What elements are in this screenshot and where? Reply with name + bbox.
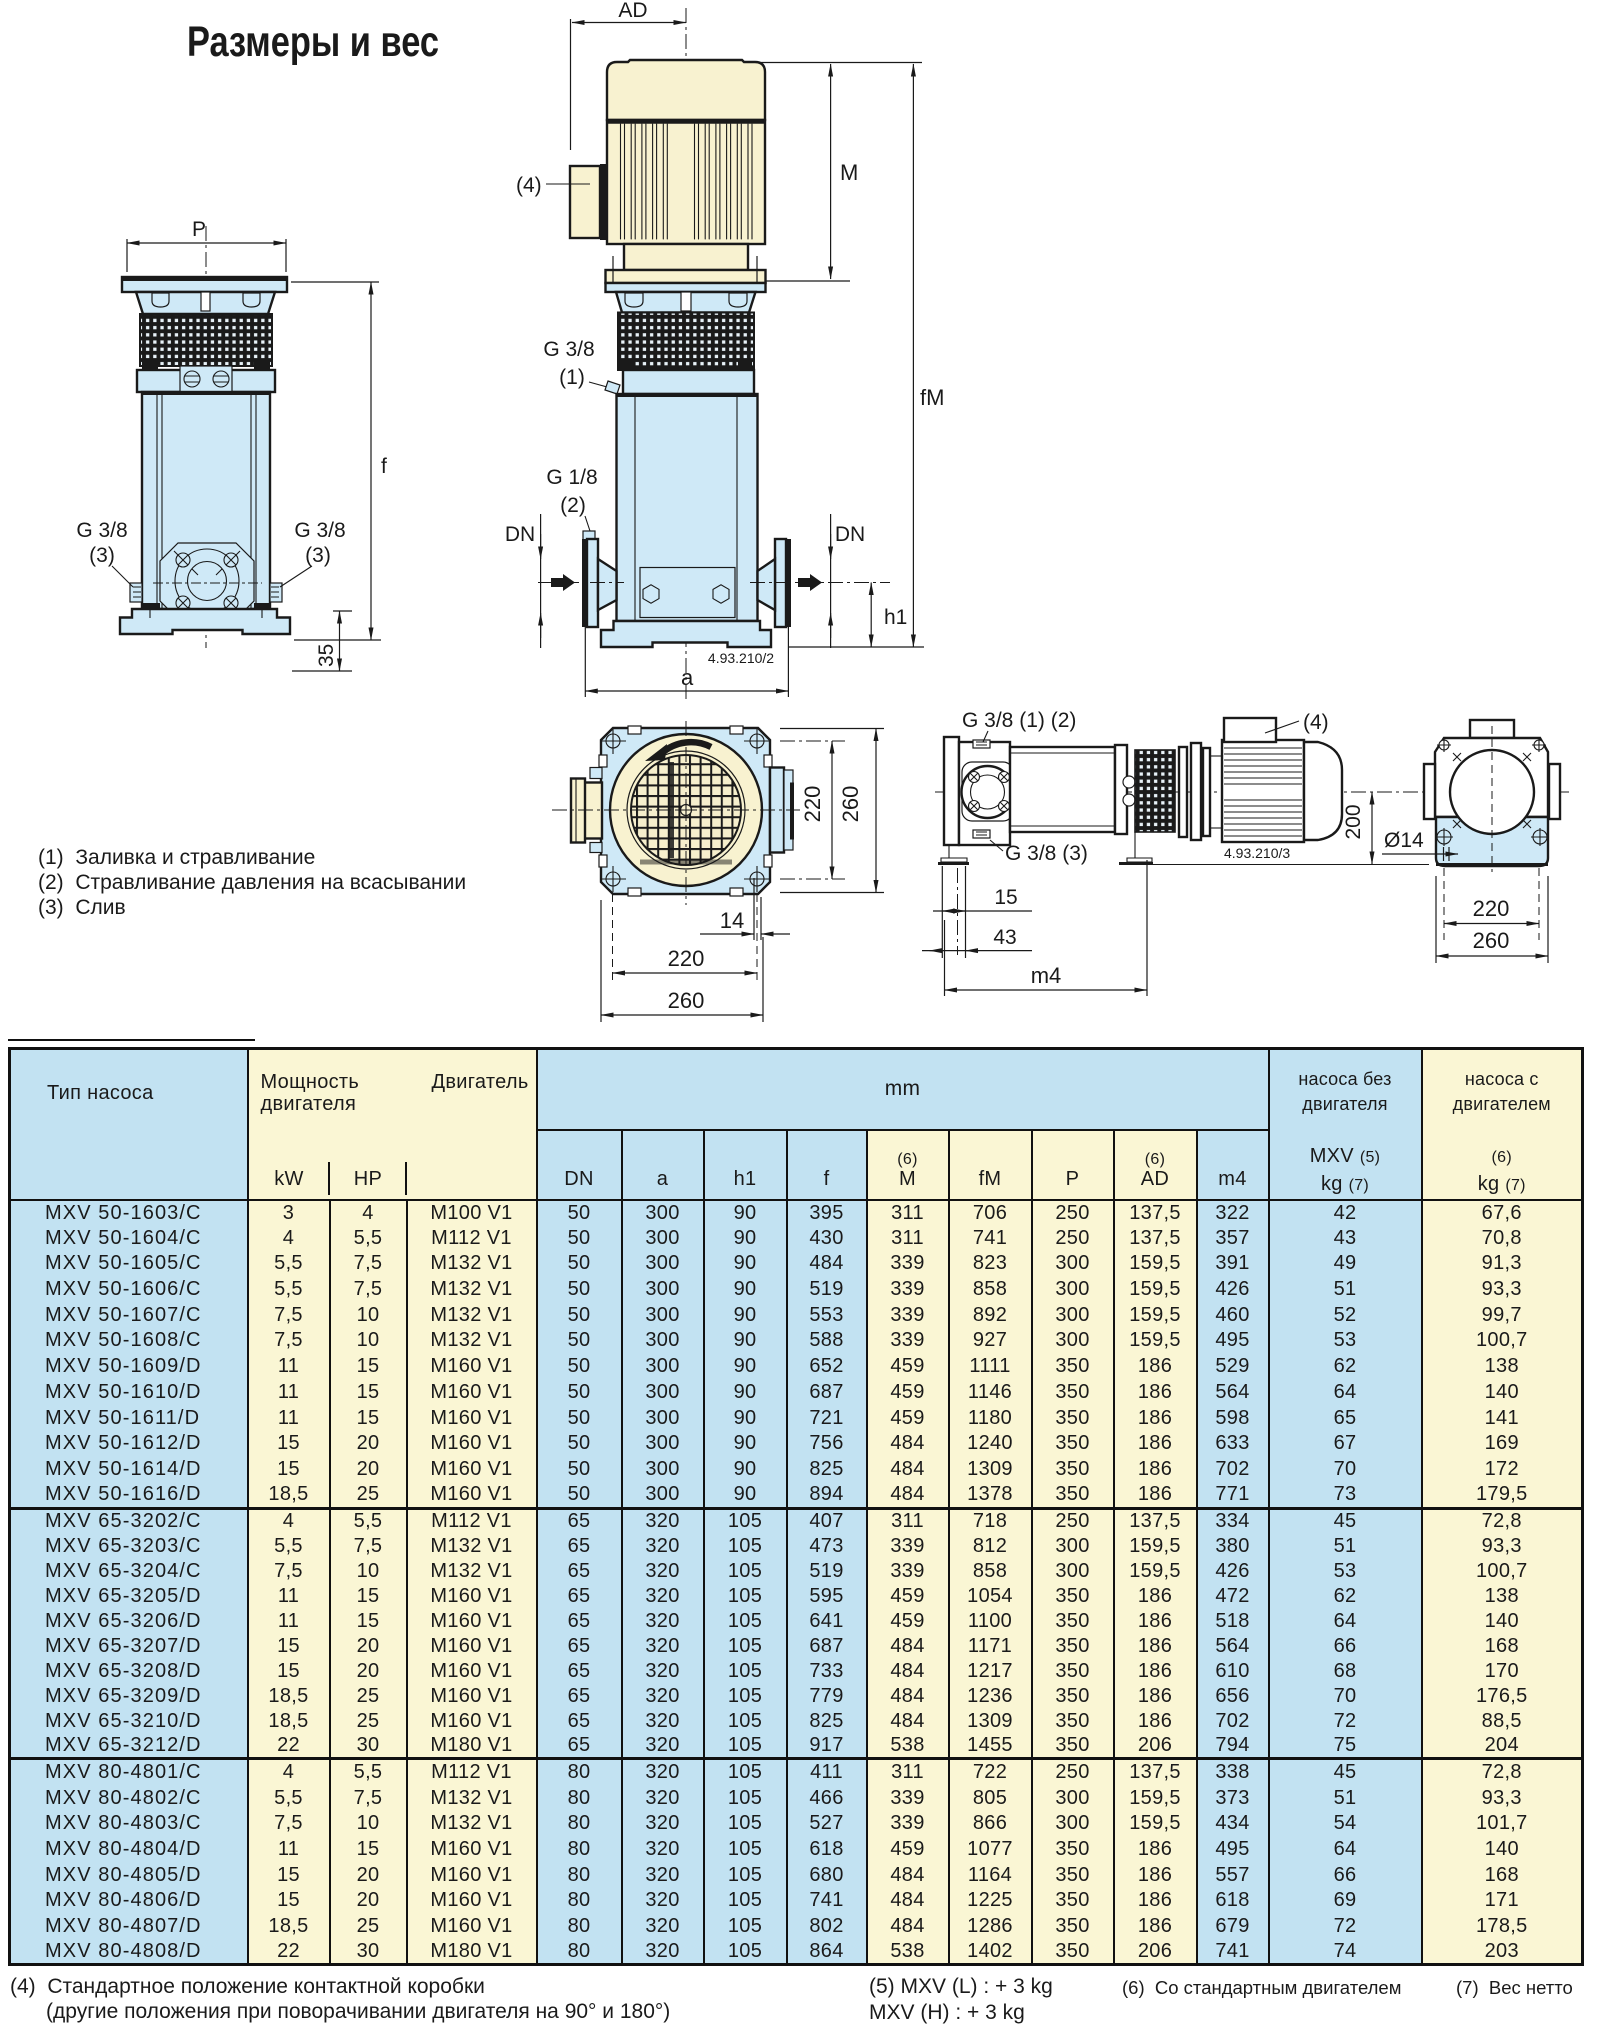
svg-text:AD: AD (618, 0, 647, 22)
svg-text:DN: DN (505, 523, 535, 546)
svg-text:G 1/8: G 1/8 (546, 466, 597, 489)
svg-text:260: 260 (1473, 928, 1510, 953)
svg-text:200: 200 (1342, 804, 1365, 839)
svg-text:P: P (192, 218, 206, 241)
svg-text:a: a (681, 665, 694, 690)
svg-text:35: 35 (315, 644, 338, 667)
svg-text:M: M (840, 160, 858, 185)
svg-text:(4): (4) (1303, 711, 1329, 734)
svg-text:220: 220 (1473, 896, 1510, 921)
svg-text:(2): (2) (560, 494, 586, 517)
svg-text:m4: m4 (1031, 963, 1062, 988)
svg-text:43: 43 (993, 926, 1016, 949)
svg-text:G 3/8: G 3/8 (76, 519, 127, 542)
svg-text:f: f (381, 455, 387, 478)
svg-text:(4): (4) (516, 174, 542, 197)
svg-text:G 3/8: G 3/8 (543, 338, 594, 361)
svg-text:4.93.210/2: 4.93.210/2 (708, 650, 774, 666)
svg-text:(1): (1) (559, 366, 585, 389)
svg-text:G 3/8: G 3/8 (294, 519, 345, 542)
svg-text:4.93.210/3: 4.93.210/3 (1224, 845, 1290, 861)
svg-text:(3): (3) (305, 544, 331, 567)
svg-text:260: 260 (668, 988, 705, 1013)
svg-text:220: 220 (668, 946, 705, 971)
svg-text:G 3/8 (1) (2): G 3/8 (1) (2) (962, 709, 1076, 732)
svg-text:DN: DN (835, 523, 865, 546)
svg-text:260: 260 (838, 786, 863, 823)
svg-text:h1: h1 (884, 606, 907, 629)
svg-text:Ø14: Ø14 (1384, 829, 1424, 852)
svg-text:(3): (3) (89, 544, 115, 567)
svg-text:fM: fM (920, 385, 944, 410)
svg-text:15: 15 (994, 886, 1017, 909)
svg-text:220: 220 (800, 786, 825, 823)
svg-text:G 3/8 (3): G 3/8 (3) (1005, 842, 1088, 865)
svg-text:14: 14 (720, 908, 744, 933)
